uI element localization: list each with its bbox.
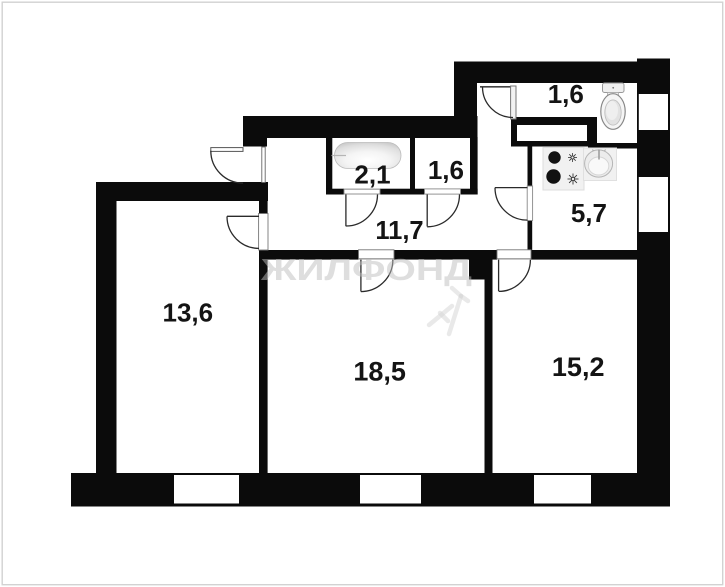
svg-text:15,2: 15,2 [552, 352, 605, 382]
svg-text:1,6: 1,6 [428, 155, 464, 185]
svg-text:11,7: 11,7 [375, 217, 423, 245]
svg-text:5,7: 5,7 [571, 198, 607, 228]
svg-text:13,6: 13,6 [162, 298, 213, 328]
svg-text:18,5: 18,5 [353, 357, 406, 387]
svg-text:1,6: 1,6 [548, 79, 584, 109]
svg-text:2,1: 2,1 [354, 160, 390, 190]
svg-text:ЖИЛФОНД: ЖИЛФОНД [260, 252, 472, 287]
